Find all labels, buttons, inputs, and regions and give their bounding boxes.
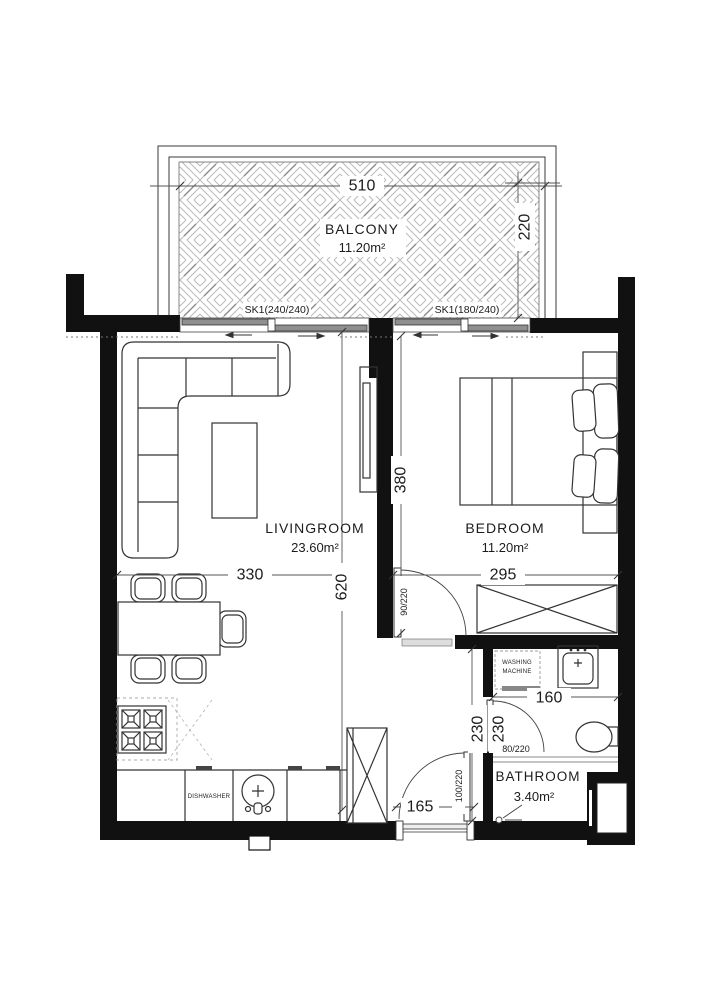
counter-corner-marks xyxy=(168,700,212,760)
shaft-box xyxy=(597,783,627,833)
kitchen: DISHWASHER xyxy=(117,698,387,823)
wall-interior xyxy=(377,378,393,638)
balcony-area: 11.20m² xyxy=(339,240,386,255)
bathroom-fixtures: WASHING MACHINE xyxy=(493,646,627,833)
wall-bottom-left xyxy=(100,821,396,840)
wall-bedroom-bottom xyxy=(455,635,635,649)
kitchen-sink xyxy=(242,775,274,814)
floorplan-drawing: DISHWASHER xyxy=(0,0,701,1000)
washing-machine: WASHING MACHINE xyxy=(495,651,540,691)
tv-unit xyxy=(360,367,377,492)
dim-bath-height: 230 xyxy=(491,716,508,743)
bathroom-area: 3.40m² xyxy=(514,789,555,804)
bedroom-area: 11.20m² xyxy=(482,540,529,555)
bed-foot-lines xyxy=(492,378,512,505)
shaft-vent-slit xyxy=(589,790,592,826)
dim-living-height: 620 xyxy=(334,574,351,601)
living-window-label: SK1(240/240) xyxy=(245,304,310,316)
kitchen-counter xyxy=(117,766,347,821)
window-slide-arrows xyxy=(226,333,498,339)
entrance-door-label: 100/220 xyxy=(454,770,464,803)
wall-left xyxy=(100,332,117,838)
wall-window-left-block xyxy=(160,318,180,332)
bedroom-door-label: 90/220 xyxy=(399,588,409,616)
dim-balcony-depth: 220 xyxy=(517,214,534,241)
wall-bottom-tab xyxy=(249,836,270,850)
living-window-divider xyxy=(268,319,275,331)
dim-bedroom-width: 295 xyxy=(490,567,517,584)
bath-sink xyxy=(558,646,598,688)
wall-shaft-bottom xyxy=(587,833,635,845)
living-window-panel-1 xyxy=(182,319,270,325)
wall-shaft-top xyxy=(587,772,635,783)
wardrobe xyxy=(477,585,617,633)
dim-bath-width: 160 xyxy=(536,690,563,707)
livingroom-name: LIVINGROOM xyxy=(265,520,364,536)
livingroom-area: 23.60m² xyxy=(291,540,339,555)
balcony-name: BALCONY xyxy=(325,221,399,237)
stove xyxy=(118,706,166,753)
wall-bottom-bath xyxy=(474,821,587,840)
washing-machine-label-1: WASHING xyxy=(502,660,532,666)
tall-cabinet xyxy=(347,728,387,823)
wall-hall-bath-upper xyxy=(483,635,493,697)
dim-living-width: 330 xyxy=(237,567,264,584)
coffee-table xyxy=(212,423,257,518)
bedroom-window-panel-2 xyxy=(465,325,528,331)
bedroom-name: BEDROOM xyxy=(465,520,544,536)
headboard xyxy=(583,352,617,533)
bathroom-leader xyxy=(496,805,522,823)
floorplan-page: DISHWASHER xyxy=(0,0,701,1000)
bedroom-furniture xyxy=(460,352,619,633)
dishwasher-label: DISHWASHER xyxy=(188,794,231,800)
wall-shaft-right xyxy=(627,783,635,833)
bathroom-name: BATHROOM xyxy=(496,769,581,784)
dining-table xyxy=(118,602,220,655)
dining-set xyxy=(118,574,246,683)
bedroom-window-panel-1 xyxy=(395,319,463,325)
dim-balcony-width: 510 xyxy=(349,178,376,195)
dim-hall-height: 230 xyxy=(470,716,487,743)
pillows xyxy=(572,384,619,504)
bedroom-window-label: SK1(180/240) xyxy=(435,304,500,316)
shower-screen-line xyxy=(493,757,618,762)
dim-entry-width: 165 xyxy=(407,799,434,816)
dim-bedroom-depth: 380 xyxy=(393,467,410,494)
living-window-panel-2 xyxy=(272,325,367,331)
wall-right xyxy=(618,277,635,772)
bedroom-window-divider xyxy=(461,319,468,331)
wall-window-pillar xyxy=(369,318,393,378)
bathroom-door-label: 80/220 xyxy=(502,744,530,754)
wall-hall-bath-lower xyxy=(483,752,493,821)
washing-machine-label-2: MACHINE xyxy=(502,669,531,675)
toilet xyxy=(576,722,618,752)
